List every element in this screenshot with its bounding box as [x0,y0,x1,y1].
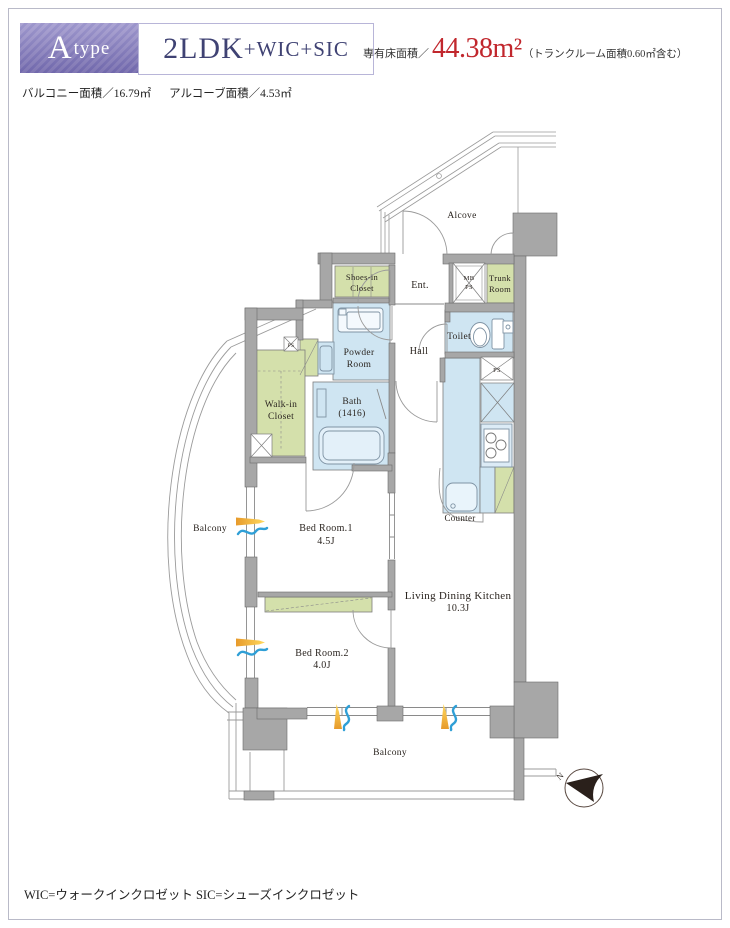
room-label-alcove: Alcove [447,211,476,221]
toilet-bowl [470,323,490,348]
room-label-balcony-left: Balcony [193,524,227,534]
room-label-bath-2: (1416) [338,408,365,419]
room-floor-trunk [487,263,514,303]
toilet-basin [503,321,513,333]
room-label-mb: MB [464,275,475,282]
room-label-shoes-2: Closet [350,283,374,293]
room-label-shoes-1: Shoes-in [346,272,379,282]
room-label-bed1-name: Bed Room.1 [299,523,353,534]
room-label-hall: Hall [410,346,428,357]
room-label-trunk-2: Room [489,284,511,294]
toilet-tank [492,319,504,349]
room-label-bath-1: Bath [342,397,361,407]
vent-marker-left [236,518,267,535]
room-label-trunk-1: Trunk [489,273,511,283]
vent-markers [236,518,456,731]
compass: N [554,769,603,807]
room-floor-kitchen2 [480,467,495,513]
room-label-bed1-size: 4.5J [317,536,335,547]
room-label-ldk-1: Living Dining Kitchen [405,590,512,602]
room-label-ldk-2: 10.3J [447,603,470,614]
bathtub [319,427,384,464]
room-label-wic-2: Closet [268,412,294,422]
room-label-ent: Ent. [411,280,429,291]
room-label-powder-2: Room [347,360,372,370]
room-label-toilet: Toilet [447,332,471,342]
room-label-wic-1: Walk-in [265,400,297,410]
room-label-bed2-size: 4.0J [313,660,331,671]
room-label-balcony-bottom: Balcony [373,748,407,758]
floor-plan: Alcove Ent. Shoes-in Closet MB PS Trunk … [0,0,730,928]
room-label-bed2-name: Bed Room.2 [295,648,349,659]
room-label-counter: Counter [444,513,475,523]
room-label-ps-upper: PS [288,343,295,349]
floorplan-page: A type 2LDK +WIC+SIC 専有床面積／ 44.38m² （トラン… [0,0,730,928]
room-label-mb-ps: PS [465,284,473,291]
compass-north-label: N [554,770,565,782]
room-label-powder-1: Powder [344,348,375,358]
room-label-ps-kitchen: PS [493,367,501,374]
abbreviation-legend: WIC=ウォークインクロゼット SIC=シューズインクロゼット [24,884,359,903]
